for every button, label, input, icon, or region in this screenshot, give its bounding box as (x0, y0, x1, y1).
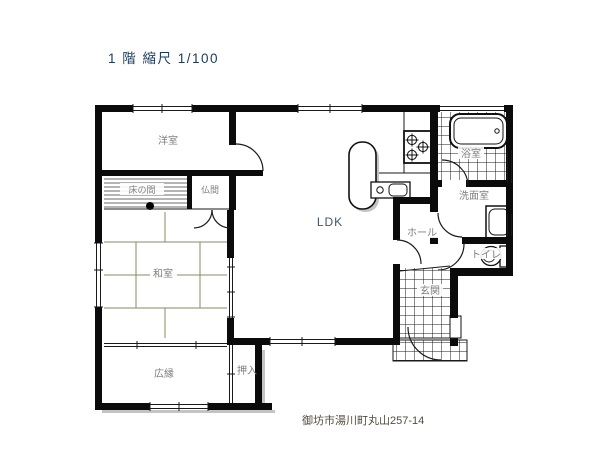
wall-segment (393, 264, 400, 340)
wall-segment (450, 268, 513, 276)
label-veranda: 広縁 (154, 367, 174, 380)
label-ldk: LDK (317, 215, 343, 229)
label-entrance: 玄関 (420, 284, 440, 297)
wall-segment (229, 105, 236, 145)
wall-segment (462, 237, 513, 244)
door-butsuma-left (194, 210, 212, 228)
shadow-closet (262, 350, 265, 408)
wall-segment (430, 112, 438, 185)
address-text: 御坊市湯川町丸山257-14 (302, 413, 424, 427)
bathtub (450, 114, 507, 148)
shoe-cabinet (450, 316, 461, 338)
wall-segment (393, 197, 400, 240)
window-japanese-room-west (94, 243, 103, 307)
window-ldk-north (298, 104, 362, 113)
wall-segment (95, 170, 263, 176)
wall-segment (335, 338, 400, 345)
wall-segment (227, 318, 234, 345)
door-hall-ldk (397, 240, 421, 264)
window-ldk-south (270, 337, 335, 346)
fusuma-washitsu-ldk (227, 258, 235, 318)
label-western-room: 洋室 (158, 134, 178, 147)
wall-segment (229, 172, 236, 210)
label-bathroom: 浴室 (461, 147, 481, 160)
wall-segment (466, 180, 513, 187)
window-bathroom-north (440, 105, 504, 112)
wall-segment (430, 185, 438, 212)
label-washroom: 洗面室 (459, 189, 489, 202)
label-hall: ホール (407, 227, 437, 239)
wall-segment (438, 180, 442, 187)
floor-plan-drawing: 1 階 縮尺 1/100 御坊市湯川町丸山257-14 (0, 0, 602, 471)
wall-segment (450, 268, 458, 318)
door-western-room (236, 144, 263, 171)
label-butsuma: 仏間 (201, 185, 219, 195)
door-toilet (438, 244, 464, 270)
window-west-room (133, 104, 192, 113)
kitchen-island (349, 142, 376, 209)
wall-segment (187, 172, 192, 209)
label-tokonoma: 床の間 (128, 184, 155, 195)
bathtub-outer (450, 114, 507, 148)
window-veranda-south (150, 402, 208, 411)
wall-segment (227, 210, 234, 258)
label-toilet: トイレ (471, 250, 501, 261)
shoji-veranda (104, 341, 227, 349)
wall-segment (450, 338, 458, 346)
partition-closet (227, 345, 235, 403)
door-washroom (438, 213, 462, 237)
label-japanese-room: 和室 (153, 267, 173, 280)
shadow-bottom (102, 410, 275, 413)
wall-segment (506, 105, 513, 276)
plan-title: 1 階 縮尺 1/100 (108, 51, 219, 66)
floor-plan-page: 1 階 縮尺 1/100 御坊市湯川町丸山257-14 (0, 0, 602, 471)
label-closet: 押入 (237, 364, 257, 377)
